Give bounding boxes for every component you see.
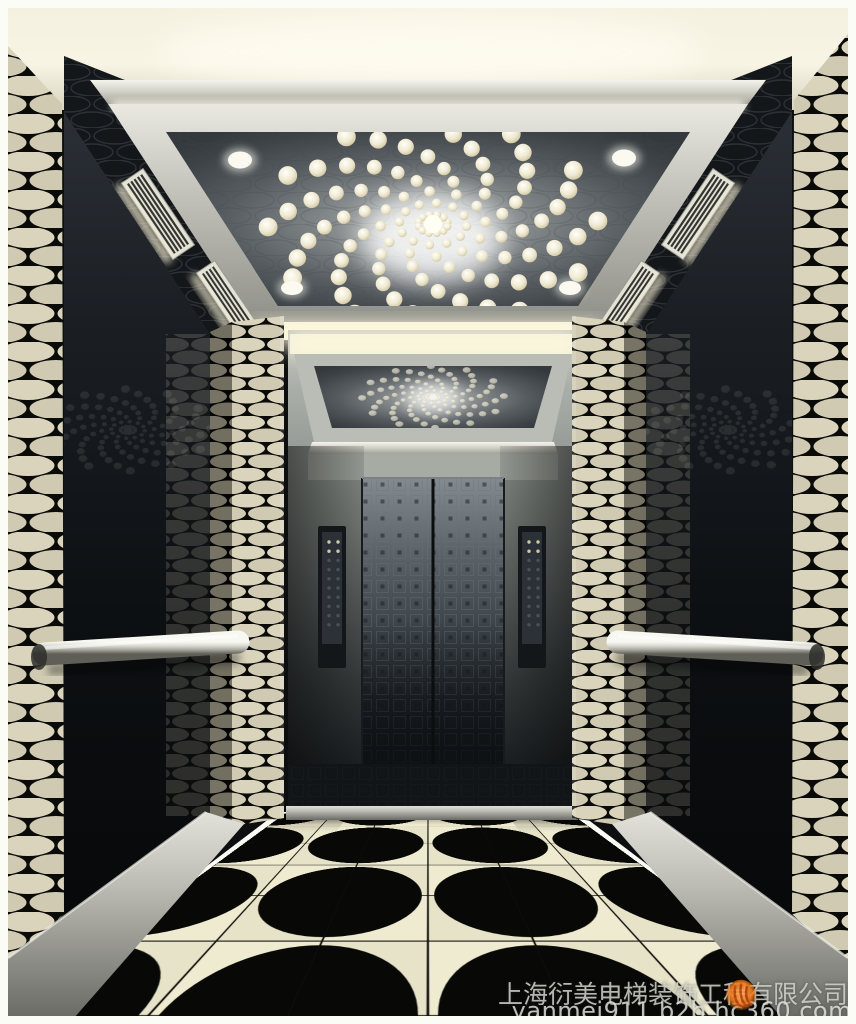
recess-cove-glow (290, 332, 574, 356)
scene-render (0, 0, 856, 1024)
pillar-right (572, 316, 646, 842)
elevator-doors (361, 477, 505, 764)
outer-wall-left (8, 46, 64, 966)
door-center-split (432, 478, 435, 764)
handrail-left-endcap (31, 644, 47, 670)
hc360-logo (722, 978, 760, 1012)
cop-panel-left (318, 526, 346, 668)
elevator-render-image: 上海衍美电梯装饰工程有限公司 yanmei911.b2b.hc360.com (0, 0, 856, 1024)
outer-wall-right (792, 34, 848, 966)
door-recess (286, 330, 578, 820)
ceiling-glow (160, 14, 700, 90)
ceiling-beam (90, 80, 766, 104)
watermark-url: yanmei911.b2b.hc360.com (512, 997, 852, 1024)
recess-skirting (286, 806, 578, 820)
cop-panel-right (518, 526, 546, 668)
pillar-left (210, 316, 284, 842)
handrail-right-endcap (809, 644, 825, 670)
